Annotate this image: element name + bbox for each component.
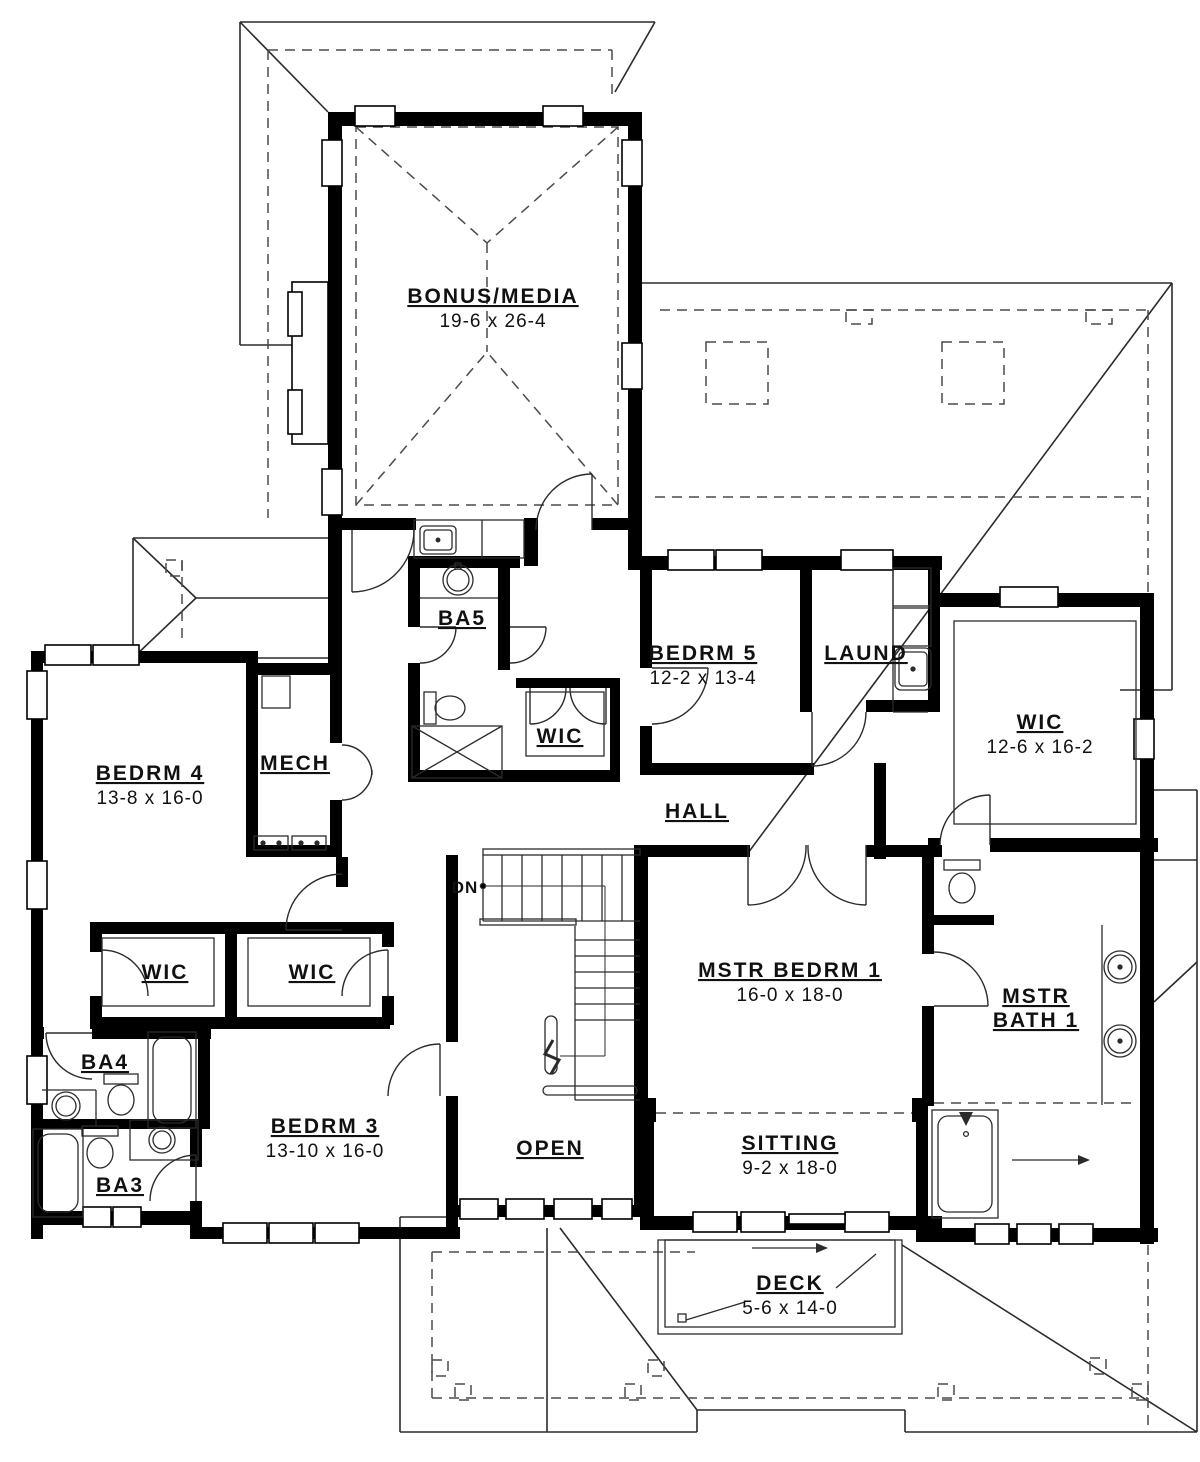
room-label-mstr-bedrm: MSTR BEDRM 1	[698, 959, 882, 982]
room-label-laund: LAUND	[824, 642, 908, 665]
stairs	[480, 849, 640, 1100]
room-label-bedrm3: BEDRM 3	[271, 1115, 380, 1138]
room-dims-deck: 5-6 x 14-0	[742, 1298, 838, 1319]
label-layer: BONUS/MEDIA 19-6 x 26-4 BA5 WIC BEDRM 5 …	[81, 285, 1094, 1319]
mstr-vanity	[1102, 925, 1136, 1105]
room-label-deck: DECK	[756, 1272, 824, 1295]
room-dims-bedrm3: 13-10 x 16-0	[266, 1141, 385, 1162]
room-label-bedrm5: BEDRM 5	[649, 642, 758, 665]
room-label-wic-small: WIC	[537, 725, 584, 748]
laundry-counter	[893, 568, 931, 712]
room-label-open: OPEN	[516, 1137, 584, 1160]
room-dims-mstr-bedrm: 16-0 x 18-0	[736, 985, 843, 1006]
stairs-dn-label: DN	[452, 878, 479, 897]
room-label-ba3: BA3	[96, 1174, 144, 1197]
room-label-bedrm4: BEDRM 4	[96, 762, 205, 785]
shower-arrow-icon	[1012, 1155, 1090, 1165]
mstr-tub-icon	[932, 1110, 998, 1218]
room-dims-bedrm4: 13-8 x 16-0	[96, 788, 203, 809]
mstr-toilet-icon	[944, 860, 980, 903]
wetbar-sink-icon	[414, 520, 524, 558]
room-label-sitting: SITTING	[742, 1132, 839, 1155]
room-label-ba5: BA5	[438, 607, 486, 630]
ba4-toilet-icon	[104, 1074, 138, 1115]
room-label-hall: HALL	[665, 800, 729, 823]
room-label-ba4: BA4	[81, 1051, 129, 1074]
room-label-wic-left: WIC	[142, 961, 189, 984]
floor-plan-svg: BONUS/MEDIA 19-6 x 26-4 BA5 WIC BEDRM 5 …	[0, 0, 1200, 1457]
room-label-wic-master: WIC	[1017, 711, 1064, 734]
room-dims-bonus: 19-6 x 26-4	[439, 311, 546, 332]
room-label-mstr-bath-1: MSTR	[1002, 985, 1070, 1008]
room-label-wic-mid: WIC	[289, 961, 336, 984]
room-dims-wic-master: 12-6 x 16-2	[986, 737, 1093, 758]
deck-door-arrow-icon	[752, 1243, 828, 1253]
ba5-toilet-icon	[424, 692, 465, 724]
floor-plan-page: BONUS/MEDIA 19-6 x 26-4 BA5 WIC BEDRM 5 …	[0, 0, 1200, 1457]
room-label-bonus: BONUS/MEDIA	[407, 285, 578, 308]
ba3-toilet-icon	[82, 1126, 118, 1168]
room-label-mech: MECH	[260, 752, 330, 775]
wall-layer	[31, 112, 1158, 1244]
room-label-mstr-bath-2: BATH 1	[993, 1009, 1079, 1032]
door-layer	[46, 474, 990, 1201]
ba4-tub-icon	[148, 1032, 196, 1128]
ba5-sink-icon	[420, 563, 498, 598]
room-dims-bedrm5: 12-2 x 13-4	[649, 668, 756, 689]
room-dims-sitting: 9-2 x 18-0	[742, 1158, 838, 1179]
